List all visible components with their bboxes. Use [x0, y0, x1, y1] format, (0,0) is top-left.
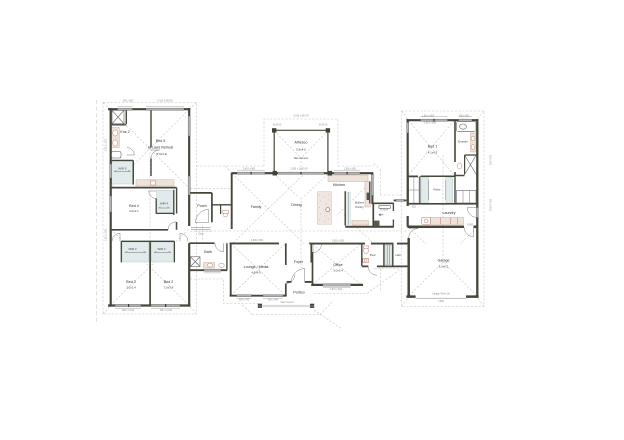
svg-text:3,010 x 600.00: 3,010 x 600.00: [293, 116, 309, 118]
svg-text:900 x 2,410: 900 x 2,410: [160, 310, 173, 312]
svg-text:Bath: Bath: [204, 250, 211, 254]
svg-text:Robe: Robe: [434, 188, 441, 192]
svg-text:2,410 x 900: 2,410 x 900: [105, 138, 107, 151]
svg-text:D.600: D.600: [467, 225, 474, 227]
svg-text:2,410 x 900.00: 2,410 x 900.00: [157, 101, 173, 103]
svg-text:W.Mach: W.Mach: [380, 209, 389, 211]
svg-text:Entry: Entry: [198, 233, 204, 236]
svg-text:2,810 x 600: 2,810 x 600: [330, 289, 343, 291]
svg-text:4,800 x 590: 4,800 x 590: [251, 240, 264, 242]
svg-text:Step Cement: Step Cement: [280, 301, 294, 304]
svg-text:Bed 5: Bed 5: [156, 139, 165, 143]
svg-text:3.0x3.1: 3.0x3.1: [129, 209, 139, 213]
svg-text:Foyer: Foyer: [294, 260, 304, 264]
svg-text:3.0x3.4: 3.0x3.4: [126, 286, 136, 290]
svg-text:4.1x4.3: 4.1x4.3: [428, 151, 438, 155]
svg-text:4.8x4.5: 4.8x4.5: [251, 271, 261, 275]
svg-text:Lounge / Media: Lounge / Media: [244, 265, 269, 269]
svg-text:Office: Office: [333, 263, 342, 267]
svg-text:900 x 600: 900 x 600: [123, 101, 134, 103]
svg-text:Garage Panel Lift: Garage Panel Lift: [432, 292, 450, 295]
svg-text:W 09 09: W 09 09: [319, 125, 328, 127]
svg-text:5,350 x 2,660.00: 5,350 x 2,660.00: [290, 169, 308, 171]
svg-text:3.0x3.4: 3.0x3.4: [333, 269, 343, 273]
svg-text:W 09 09: W 09 09: [273, 125, 282, 127]
svg-text:4,800: 4,800: [438, 301, 444, 303]
svg-text:900 x 2,410: 900 x 2,410: [122, 310, 135, 312]
svg-text:WIR 5: WIR 5: [118, 167, 126, 171]
svg-text:Garage: Garage: [438, 259, 450, 263]
svg-text:WIR 4: WIR 4: [160, 201, 168, 205]
svg-text:1,810 x 600: 1,810 x 600: [422, 116, 435, 118]
svg-text:(3.9x4.3): (3.9x4.3): [156, 152, 167, 156]
svg-text:3,010 x 590: 3,010 x 590: [332, 240, 345, 242]
svg-text:Dining: Dining: [291, 203, 301, 207]
svg-text:Pwd: Pwd: [370, 253, 376, 257]
svg-text:Porch: Porch: [197, 204, 206, 208]
svg-text:3.0x3.4: 3.0x3.4: [164, 286, 174, 290]
svg-text:900 x 2,410: 900 x 2,410: [489, 199, 491, 212]
svg-text:5.5x4.5: 5.5x4.5: [296, 148, 306, 152]
svg-text:600 x 900: 600 x 900: [489, 155, 491, 166]
svg-text:2,050 x 900: 2,050 x 900: [344, 169, 357, 171]
svg-text:Alfresco: Alfresco: [295, 141, 308, 145]
svg-text:900 x 940: 900 x 940: [268, 300, 279, 302]
svg-text:WIR 2: WIR 2: [157, 247, 165, 251]
svg-text:Bed 1: Bed 1: [428, 145, 437, 149]
svg-text:Laundry: Laundry: [443, 211, 456, 215]
svg-text:Portico: Portico: [293, 291, 304, 295]
svg-text:6.0x6.2: 6.0x6.2: [439, 265, 449, 269]
svg-text:Family: Family: [251, 205, 262, 209]
svg-text:Ensuite: Ensuite: [458, 140, 468, 144]
svg-text:flat cement: flat cement: [294, 156, 308, 160]
svg-text:Pantry: Pantry: [355, 205, 364, 209]
svg-text:Bed 2: Bed 2: [164, 280, 173, 284]
svg-text:Butlers: Butlers: [355, 201, 365, 205]
svg-text:Bed 4: Bed 4: [129, 204, 138, 208]
svg-text:WIR 3: WIR 3: [128, 247, 136, 251]
svg-text:1,810 x 900: 1,810 x 900: [105, 228, 107, 241]
svg-text:2,410 x 900: 2,410 x 900: [243, 169, 256, 171]
svg-text:Ens 2: Ens 2: [120, 130, 129, 134]
svg-text:Bed 3: Bed 3: [126, 280, 135, 284]
svg-text:Kitchen: Kitchen: [333, 183, 345, 187]
svg-text:1,810 x 600: 1,810 x 600: [424, 122, 437, 124]
svg-text:Hall: Hall: [396, 253, 401, 257]
svg-text:900 x 740: 900 x 740: [239, 300, 250, 302]
svg-text:600 x 900: 600 x 900: [459, 116, 470, 118]
svg-text:In Laws Retreat: In Laws Retreat: [148, 146, 173, 150]
